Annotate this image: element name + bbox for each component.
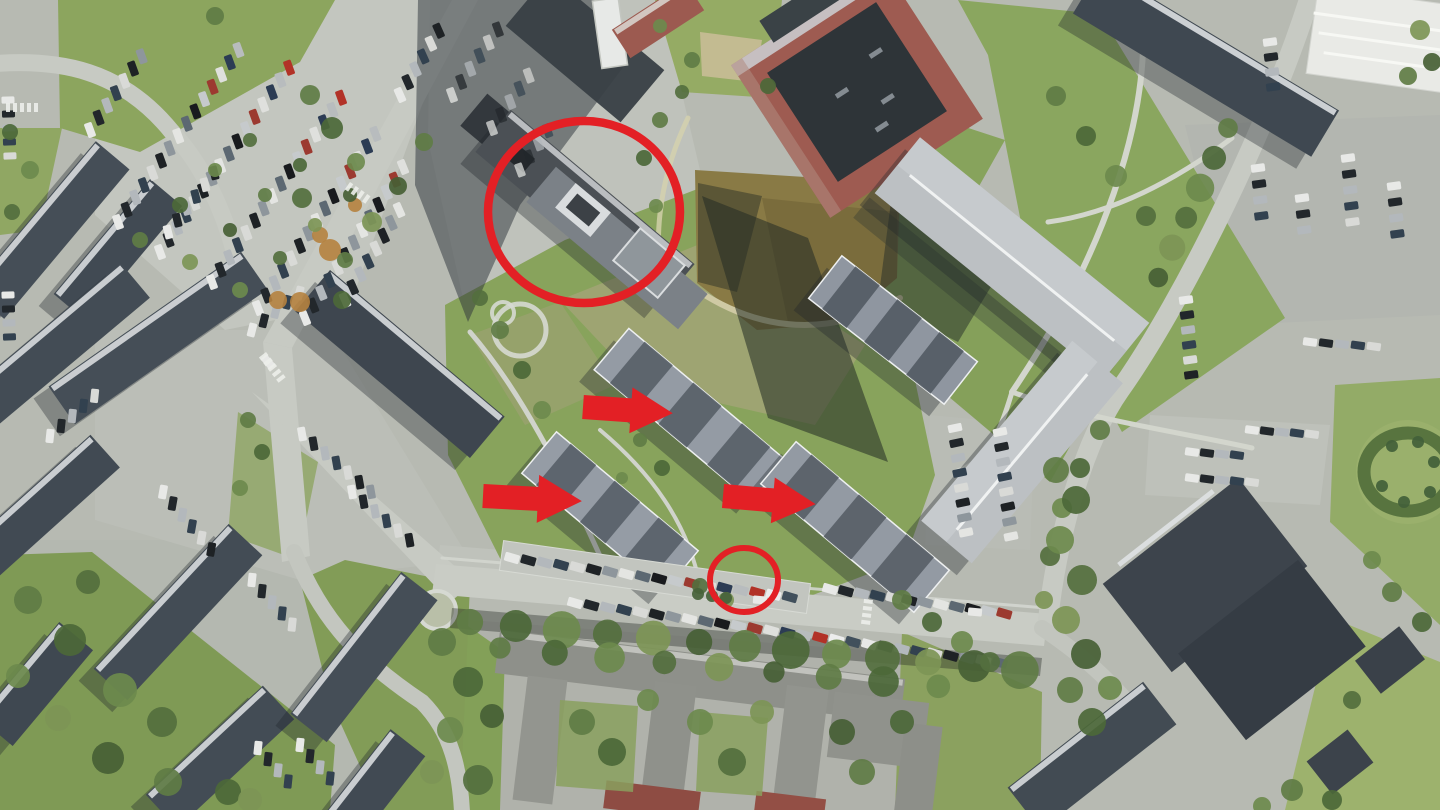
aerial-photo-svg (0, 0, 1440, 810)
aerial-map (0, 0, 1440, 810)
map-scene (0, 0, 1440, 810)
